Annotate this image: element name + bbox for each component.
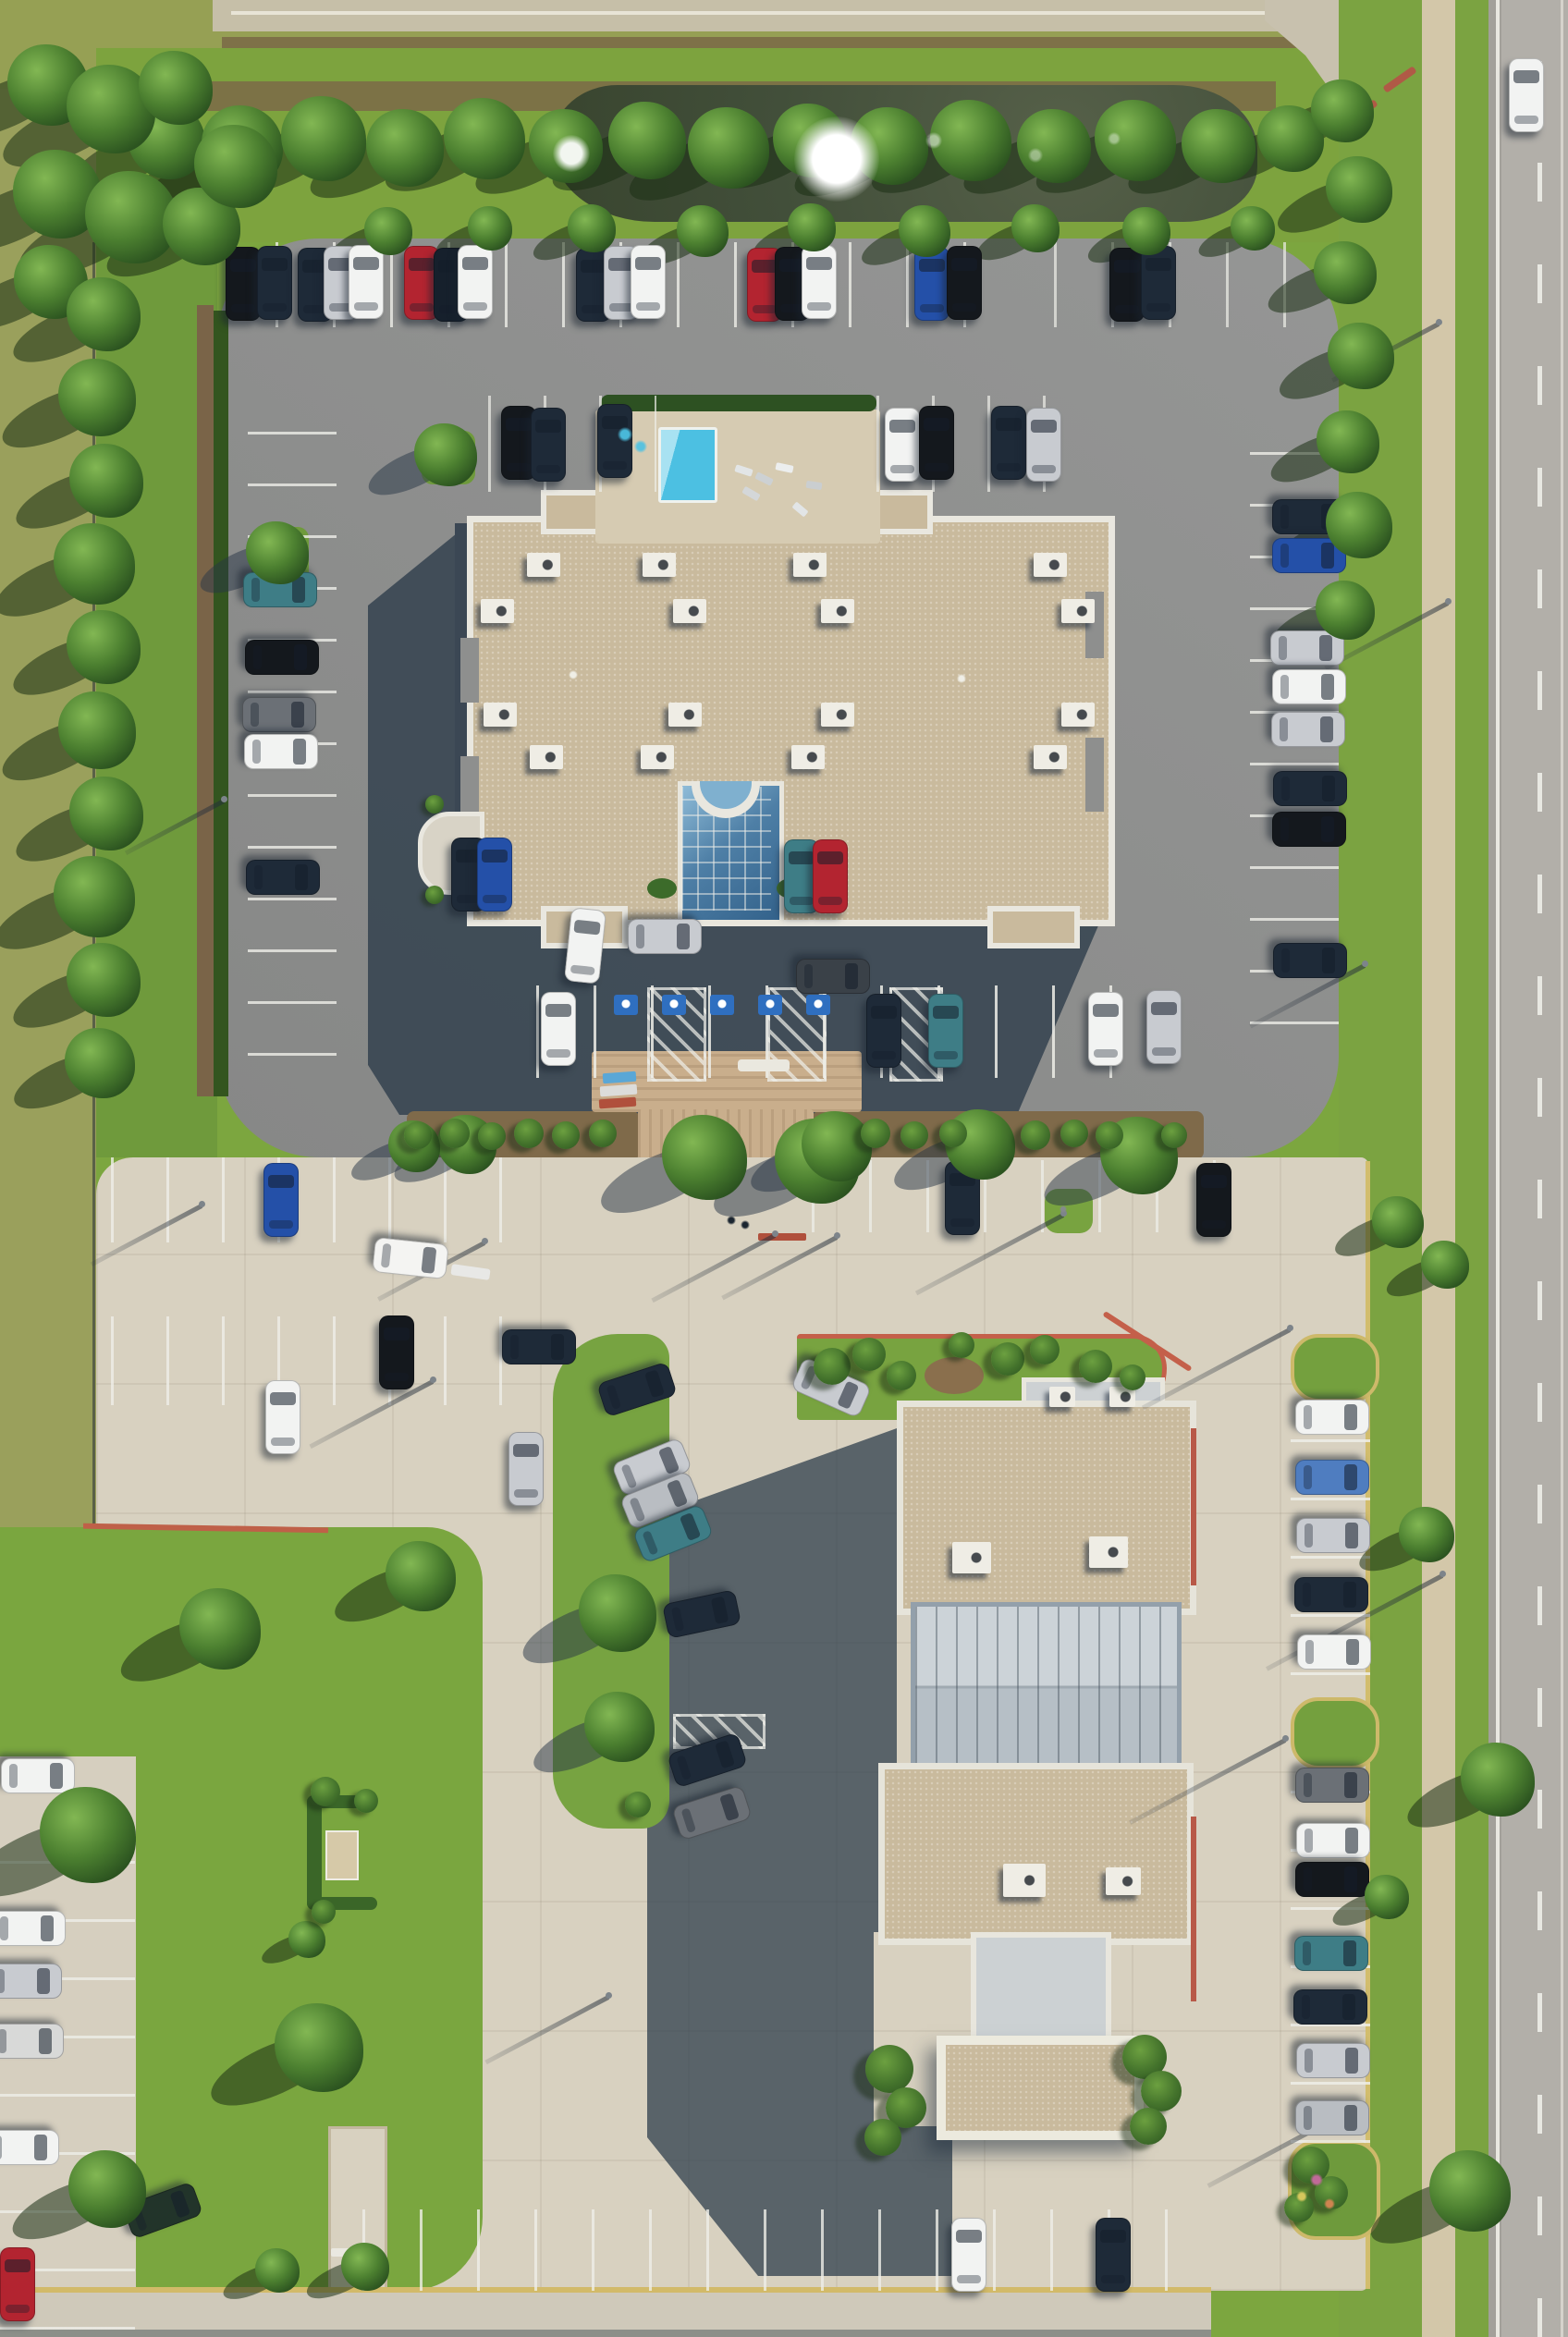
light-pole-base-6	[772, 1230, 778, 1237]
car-windshield	[806, 257, 831, 269]
car-74	[1296, 1823, 1370, 1858]
car-rear-glass	[1152, 1047, 1176, 1056]
car-rear-glass	[1101, 2275, 1125, 2283]
light-pole-base-10	[1445, 598, 1452, 605]
car-windshield	[1321, 674, 1333, 699]
car-rear-glass	[483, 895, 507, 903]
car-windshield	[933, 1006, 958, 1018]
car-windshield	[711, 1597, 729, 1624]
car-rear-glass	[463, 302, 487, 311]
car-rear-glass	[1304, 1867, 1312, 1891]
right-sidewalk	[1422, 0, 1455, 2337]
car-rear-glass	[251, 703, 259, 727]
car-1	[226, 247, 261, 321]
office-vestibule-south	[971, 1932, 1111, 2047]
bush-27	[1130, 2108, 1167, 2145]
car-22	[885, 408, 920, 482]
car-rear-glass	[1146, 303, 1170, 312]
car-windshield	[996, 418, 1021, 430]
tree-23	[1122, 207, 1170, 255]
bush-16	[887, 1361, 916, 1390]
car-rear-glass	[269, 1220, 293, 1229]
light-pole-top	[1060, 1205, 1067, 1213]
hvac-unit-1	[527, 553, 560, 577]
car-windshield	[513, 1444, 538, 1456]
tree-17	[468, 206, 512, 251]
hotel-notch-w1	[460, 638, 479, 703]
car-2	[257, 246, 292, 320]
car-80	[951, 2218, 986, 2292]
car-78	[1296, 2043, 1370, 2078]
car-windshield	[1319, 635, 1331, 660]
red-curb-east-2	[1191, 1817, 1196, 2001]
handicap-icon-2	[662, 995, 686, 1015]
car-windshield	[41, 1915, 53, 1940]
car-rear-glass	[570, 964, 595, 975]
car-77	[1293, 1989, 1367, 2025]
car-rear-glass	[271, 1438, 295, 1446]
hvac-unit-5	[481, 599, 514, 623]
car-rear-glass	[385, 1373, 409, 1381]
hvac-unit-10	[668, 703, 702, 727]
car-rear-glass	[753, 305, 777, 313]
car-59	[1, 1758, 75, 1793]
car-rear-glass	[1305, 2049, 1313, 2073]
bush-15	[852, 1338, 886, 1371]
monument-sign	[325, 1830, 359, 1880]
hvac-unit-9	[484, 703, 517, 727]
handicap-icon-1	[614, 995, 638, 1015]
hvac-unit-12	[1061, 703, 1095, 727]
car-rear-glass	[790, 897, 814, 905]
car-rear-glass	[1305, 1523, 1313, 1548]
car-rear-glass	[254, 865, 263, 889]
car-windshield	[1031, 420, 1056, 432]
tree-67	[341, 2243, 389, 2291]
road-lane-dashes	[1537, 0, 1542, 2337]
hvac-unit-21	[1003, 1864, 1046, 1897]
car-rear-glass	[636, 924, 644, 948]
pond-fountain-main	[794, 116, 879, 202]
car-23	[919, 406, 954, 480]
car-44	[796, 959, 870, 994]
tree-18	[568, 204, 616, 252]
car-76	[1294, 1936, 1368, 1971]
pond-sparkle-1	[925, 132, 942, 149]
finger-island-2	[1291, 1697, 1379, 1769]
car-42	[477, 838, 512, 912]
red-curb-east-1	[1191, 1428, 1196, 1585]
car-49	[1088, 992, 1123, 1066]
pool-umbrella-2	[634, 440, 647, 453]
car-rear-glass	[0, 2029, 6, 2053]
bush-9	[939, 1120, 967, 1147]
tree-71	[1399, 1507, 1454, 1562]
entrance-shrub-left	[647, 878, 677, 899]
car-rear-glass	[950, 1218, 974, 1227]
car-rear-glass	[536, 465, 560, 473]
car-windshield	[889, 420, 914, 432]
bush-31	[311, 1777, 340, 1806]
bush-18	[991, 1342, 1024, 1376]
car-windshield	[170, 2190, 190, 2218]
car-rear-glass	[629, 1497, 645, 1523]
car-windshield	[1151, 1002, 1176, 1014]
handicap-icon-5	[806, 995, 830, 1015]
car-windshield	[919, 259, 944, 271]
car-windshield	[667, 1479, 688, 1507]
office-roof-metal	[911, 1602, 1182, 1772]
tree-73	[1365, 1875, 1409, 1919]
car-27	[245, 640, 319, 675]
car-rear-glass	[582, 305, 606, 313]
car-51	[263, 1163, 299, 1237]
hvac-unit-3	[793, 553, 827, 577]
light-pole-base-4	[1282, 1735, 1289, 1742]
car-rear-glass	[252, 740, 261, 764]
hedge-line-top	[222, 37, 1322, 48]
car-windshield	[1343, 1582, 1355, 1607]
car-rear-glass	[6, 2305, 30, 2313]
car-rear-glass	[1304, 1405, 1312, 1429]
car-windshield	[409, 258, 434, 270]
flower-yellow	[1296, 2191, 1307, 2202]
car-rear-glass	[1115, 305, 1139, 313]
car-47	[866, 994, 901, 1068]
hvac-unit-20	[1089, 1536, 1128, 1568]
car-20	[531, 408, 566, 482]
roof-vent-1	[569, 670, 578, 679]
light-pole-base-7	[482, 1238, 488, 1244]
car-rear-glass	[818, 897, 842, 905]
car-rear-glass	[354, 302, 378, 311]
flower-orange	[1324, 2198, 1335, 2209]
bush-12	[1096, 1121, 1123, 1149]
flower-pink	[1310, 2173, 1323, 2186]
car-windshield	[1321, 543, 1333, 568]
pool-umbrella-1	[618, 427, 632, 442]
car-windshield	[1344, 2105, 1356, 2130]
bottom-sidewalk	[0, 2291, 1211, 2331]
hvac-unit-6	[673, 599, 706, 623]
hvac-unit-16	[1034, 745, 1067, 769]
car-rear-glass	[231, 304, 255, 312]
car-windshield	[951, 258, 976, 270]
car-54	[265, 1380, 300, 1454]
car-68	[1295, 1400, 1369, 1435]
left-hedge-row	[214, 311, 228, 1096]
car-windshield	[680, 1512, 701, 1540]
car-windshield	[1344, 1866, 1356, 1891]
car-windshield	[719, 1793, 739, 1821]
light-pole-base-8	[606, 1992, 612, 1999]
pond-fountain-small	[553, 135, 590, 172]
right-road-far-line	[1561, 0, 1563, 2337]
car-15	[914, 247, 949, 321]
bush-14	[814, 1348, 851, 1385]
stalls-westlot-row2	[111, 1316, 525, 1405]
car-48	[928, 994, 963, 1068]
car-rear-glass	[1202, 1220, 1226, 1229]
car-windshield	[1345, 1523, 1357, 1548]
car-rear-glass	[890, 465, 914, 473]
car-rear-glass	[251, 578, 260, 602]
car-17	[1109, 248, 1145, 322]
hvac-unit-2	[643, 553, 676, 577]
car-71	[1294, 1577, 1368, 1612]
car-rear-glass	[620, 1463, 637, 1489]
car-rear-glass	[1304, 2106, 1312, 2130]
car-rear-glass	[603, 461, 627, 470]
car-windshield	[1201, 1175, 1226, 1187]
car-rear-glass	[263, 303, 287, 312]
tree-68	[255, 2248, 300, 2293]
hvac-unit-14	[641, 745, 674, 769]
hvac-unit-22	[1106, 1867, 1141, 1895]
car-windshield	[924, 418, 949, 430]
car-windshield	[574, 920, 601, 935]
bush-32	[354, 1789, 378, 1813]
car-windshield	[5, 2259, 30, 2271]
car-37	[1272, 812, 1346, 847]
hotel-notch-w2	[460, 756, 479, 814]
light-pole-base-9	[1439, 1571, 1446, 1577]
bush-35	[425, 795, 444, 814]
pond-sparkle-2	[1028, 148, 1043, 163]
office-roof-south	[878, 1763, 1194, 1945]
bush-34	[625, 1792, 651, 1817]
bush-5	[552, 1121, 580, 1149]
car-rear-glass	[1303, 1583, 1311, 1607]
car-rear-glass	[1305, 1640, 1314, 1664]
car-windshield	[752, 260, 777, 272]
car-5	[349, 245, 384, 319]
monument-hedge-left	[307, 1795, 322, 1910]
fence-line-top	[231, 11, 1294, 15]
car-windshield	[1342, 1994, 1354, 2019]
car-rear-glass	[0, 1969, 5, 1993]
car-14	[802, 245, 837, 319]
car-windshield	[1346, 1639, 1358, 1664]
car-73	[1295, 1768, 1369, 1803]
car-rear-glass	[410, 303, 434, 312]
car-25	[1026, 408, 1061, 482]
car-windshield	[230, 259, 255, 271]
drive-through-canopy	[937, 2036, 1144, 2140]
car-rear-glass	[0, 2135, 2, 2160]
car-rear-glass	[1302, 1995, 1310, 2019]
stalls-south-row	[362, 2209, 1213, 2291]
tree-16	[364, 207, 412, 255]
car-rear-glass	[381, 1243, 392, 1268]
roof-vent-2	[957, 674, 966, 683]
car-windshield	[635, 257, 660, 269]
car-36	[1273, 771, 1347, 806]
car-rear-glass	[1280, 675, 1289, 699]
tree-24	[1231, 206, 1275, 251]
bush-24	[864, 2119, 901, 2156]
bush-19	[1030, 1335, 1060, 1364]
pond-sparkle-3	[1108, 132, 1121, 145]
light-pole-base-11	[1436, 319, 1442, 325]
car-18	[1141, 246, 1176, 320]
bush-36	[425, 886, 444, 904]
hotel-notch-e2	[1085, 738, 1104, 812]
car-rear-glass	[636, 302, 660, 311]
car-windshield	[551, 1334, 563, 1359]
car-windshield	[1513, 70, 1538, 82]
bush-4	[514, 1119, 544, 1148]
car-windshield	[1344, 1772, 1356, 1797]
car-windshield	[1321, 816, 1333, 841]
car-rear-glass	[925, 463, 949, 471]
car-rear-glass	[1279, 636, 1287, 660]
car-56	[1196, 1163, 1231, 1237]
car-35	[1271, 712, 1345, 747]
hotel-roof-bump-s2	[987, 906, 1080, 948]
car-windshield	[658, 1446, 680, 1474]
bush-22	[865, 2045, 913, 2093]
car-windshield	[50, 1763, 62, 1788]
car-72	[1297, 1634, 1371, 1670]
car-windshield	[1100, 2230, 1125, 2242]
car-rear-glass	[1280, 505, 1289, 529]
car-windshield	[268, 1175, 293, 1187]
car-windshield	[292, 577, 304, 602]
car-79	[1295, 2100, 1369, 2135]
light-pole-base-1	[430, 1377, 436, 1383]
hvac-unit-8	[1061, 599, 1095, 623]
car-windshield	[506, 418, 531, 430]
hvac-unit-7	[821, 599, 854, 623]
car-rear-glass	[1304, 1773, 1312, 1797]
car-windshield	[581, 260, 606, 272]
car-windshield	[789, 851, 814, 863]
car-windshield	[1322, 948, 1334, 973]
hvac-unit-11	[821, 703, 854, 727]
car-windshield	[1114, 260, 1139, 272]
car-29	[244, 734, 318, 769]
car-windshield	[1343, 1940, 1355, 1965]
car-rear-glass	[920, 304, 944, 312]
car-rear-glass	[606, 1384, 621, 1410]
car-windshield	[1145, 258, 1170, 270]
car-rear-glass	[9, 1764, 18, 1788]
car-rear-glass	[546, 1049, 570, 1058]
bottom-street-edge	[0, 2330, 1211, 2337]
car-16	[947, 246, 982, 320]
car-windshield	[34, 2135, 46, 2160]
far-road-top	[213, 0, 1368, 31]
handicap-icon-3	[710, 995, 734, 1015]
car-rear-glass	[804, 964, 813, 988]
car-rear-glass	[872, 1051, 896, 1059]
car-windshield	[1320, 716, 1332, 741]
bush-7	[861, 1119, 890, 1148]
tree-66	[288, 1921, 325, 1958]
car-28	[242, 697, 316, 732]
car-windshield	[845, 963, 857, 988]
pedestrian-2	[741, 1220, 750, 1230]
car-30	[246, 860, 320, 895]
car-82	[0, 1911, 66, 1946]
tree-22	[1011, 204, 1060, 252]
car-81	[1096, 2218, 1131, 2292]
car-windshield	[535, 420, 560, 432]
bush-10	[1021, 1120, 1050, 1150]
car-rear-glass	[1280, 717, 1288, 741]
car-rear-glass	[1280, 544, 1289, 568]
car-rear-glass	[952, 303, 976, 312]
light-pole-base-15	[834, 1232, 840, 1239]
car-53	[379, 1315, 414, 1389]
tree-21	[899, 205, 950, 257]
light-pole-base-3	[1287, 1325, 1293, 1331]
car-rear-glass	[642, 1530, 658, 1556]
bush-33	[312, 1900, 336, 1924]
car-rear-glass	[1281, 777, 1290, 801]
car-rear-glass	[0, 1916, 8, 1940]
car-50	[1146, 990, 1182, 1064]
car-rear-glass	[1303, 1941, 1311, 1965]
car-57	[502, 1329, 576, 1364]
car-windshield	[1093, 1004, 1118, 1016]
bush-6	[589, 1120, 617, 1147]
bush-3	[478, 1122, 506, 1150]
left-mulch-strip	[197, 305, 214, 1096]
tree-19	[677, 205, 729, 257]
car-87	[0, 2247, 35, 2321]
handicap-icon-4	[758, 995, 782, 1015]
bush-17	[949, 1332, 974, 1358]
car-75	[1295, 1862, 1369, 1897]
car-windshield	[294, 644, 306, 669]
car-rear-glass	[1094, 1049, 1118, 1058]
car-rear-glass	[680, 1807, 696, 1833]
car-43	[628, 919, 702, 954]
car-70	[1296, 1518, 1370, 1553]
car-windshield	[715, 1741, 734, 1768]
car-windshield	[384, 1328, 409, 1340]
car-24	[991, 406, 1026, 480]
car-rear-glass	[957, 2275, 981, 2283]
car-46	[541, 992, 576, 1066]
hvac-unit-13	[530, 745, 563, 769]
car-windshield	[353, 257, 378, 269]
car-windshield	[1345, 2048, 1357, 2073]
car-8	[458, 245, 493, 319]
bush-1	[404, 1121, 432, 1149]
car-rear-glass	[1280, 817, 1289, 841]
car-rear-glass	[507, 463, 531, 471]
car-windshield	[677, 924, 689, 948]
car-rear-glass	[676, 1755, 692, 1780]
car-windshield	[270, 1392, 295, 1404]
car-rear-glass	[510, 1335, 519, 1359]
right-road-edge-line	[1496, 0, 1500, 2337]
car-34	[1272, 669, 1346, 704]
car-rear-glass	[1305, 1829, 1313, 1853]
car-rear-glass	[934, 1051, 958, 1059]
car-windshield	[1344, 1464, 1356, 1489]
car-windshield	[482, 850, 507, 862]
car-rear-glass	[997, 463, 1021, 471]
car-windshield	[838, 1381, 859, 1409]
finger-island-1	[1291, 1334, 1379, 1402]
car-84	[0, 2024, 64, 2059]
light-pole-base-12	[221, 796, 227, 802]
bush-11	[1060, 1120, 1088, 1147]
